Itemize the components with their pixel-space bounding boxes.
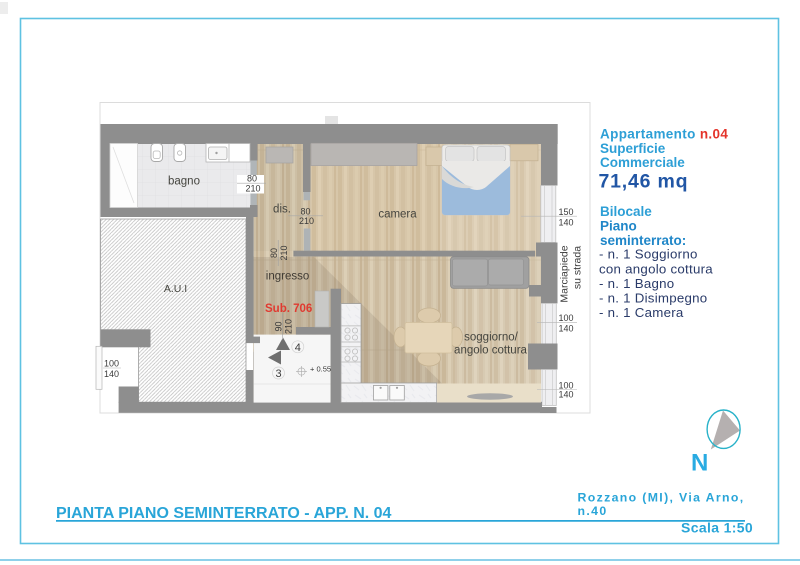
svg-text:- n. 1 Camera: - n. 1 Camera (599, 305, 684, 320)
svg-text:Commerciale: Commerciale (600, 155, 685, 170)
svg-text:71,46 mq: 71,46 mq (599, 170, 689, 192)
svg-text:PIANTA PIANO SEMINTERRATO - AP: PIANTA PIANO SEMINTERRATO - APP. N. 04 (56, 505, 392, 522)
svg-text:100: 100 (559, 313, 574, 323)
svg-text:Superficie: Superficie (600, 141, 666, 156)
svg-text:140: 140 (559, 218, 574, 228)
svg-text:ingresso: ingresso (266, 271, 309, 283)
svg-text:+ 0.55: + 0.55 (310, 365, 331, 374)
svg-text:- n. 1 Bagno: - n. 1 Bagno (599, 276, 674, 291)
svg-text:Marciapiede: Marciapiede (559, 245, 571, 302)
svg-text:n.40: n.40 (578, 504, 608, 518)
svg-text:150: 150 (559, 207, 574, 217)
svg-text:90: 90 (274, 321, 284, 331)
svg-text:soggiorno/: soggiorno/ (464, 332, 519, 344)
svg-text:Piano: Piano (600, 219, 637, 234)
svg-text:- n. 1 Soggiorno: - n. 1 Soggiorno (599, 247, 698, 262)
svg-text:camera: camera (378, 209, 417, 221)
svg-text:140: 140 (559, 390, 574, 400)
svg-text:140: 140 (559, 324, 574, 334)
svg-text:Scala 1:50: Scala 1:50 (681, 520, 753, 536)
svg-text:- n. 1 Disimpegno: - n. 1 Disimpegno (599, 291, 707, 306)
svg-text:Appartamento n.04: Appartamento n.04 (600, 127, 728, 142)
svg-text:su strada: su strada (572, 246, 584, 289)
svg-text:210: 210 (245, 184, 260, 194)
svg-text:210: 210 (284, 319, 294, 334)
svg-text:angolo cottura: angolo cottura (454, 345, 527, 357)
svg-text:210: 210 (299, 216, 314, 226)
svg-text:4: 4 (295, 342, 301, 354)
svg-text:bagno: bagno (168, 176, 200, 188)
svg-text:Rozzano (MI), Via Arno,: Rozzano (MI), Via Arno, (578, 491, 745, 505)
svg-text:con angolo cottura: con angolo cottura (599, 261, 713, 276)
svg-text:80: 80 (247, 174, 257, 184)
svg-text:Bilocale: Bilocale (600, 204, 652, 219)
svg-text:3: 3 (275, 368, 281, 380)
svg-text:N: N (691, 450, 708, 477)
svg-text:100: 100 (104, 359, 119, 369)
svg-text:A.U.I: A.U.I (164, 283, 187, 295)
svg-text:210: 210 (279, 245, 289, 260)
svg-text:dis.: dis. (273, 204, 291, 216)
svg-text:Sub. 706: Sub. 706 (265, 303, 312, 315)
svg-text:140: 140 (104, 369, 119, 379)
svg-text:80: 80 (269, 248, 279, 258)
